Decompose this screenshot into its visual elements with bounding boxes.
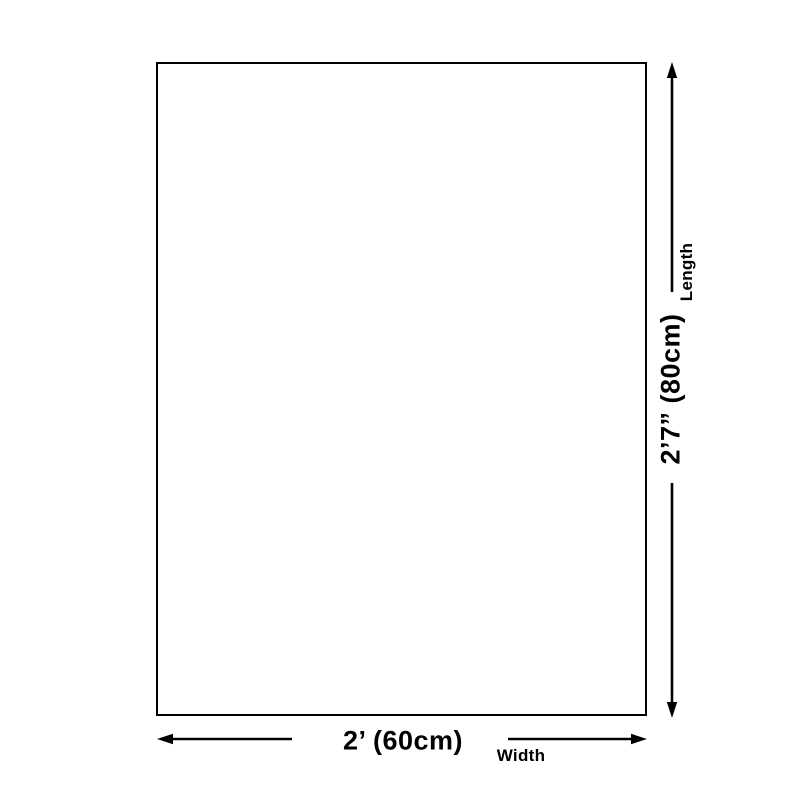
product-outline <box>156 62 647 716</box>
length-arrow-down-icon <box>667 483 677 718</box>
width-value-label: 2’ (60cm) <box>343 726 463 757</box>
width-axis-label: Width <box>497 746 546 766</box>
width-arrow-right-icon <box>508 734 647 744</box>
size-diagram: 2’ (60cm) Width 2’7” (80cm) Length <box>0 0 800 800</box>
length-arrow-up-icon <box>667 62 677 292</box>
length-axis-label: Length <box>677 243 697 301</box>
width-arrow-left-icon <box>157 734 292 744</box>
length-value-label: 2’7” (80cm) <box>656 313 687 464</box>
